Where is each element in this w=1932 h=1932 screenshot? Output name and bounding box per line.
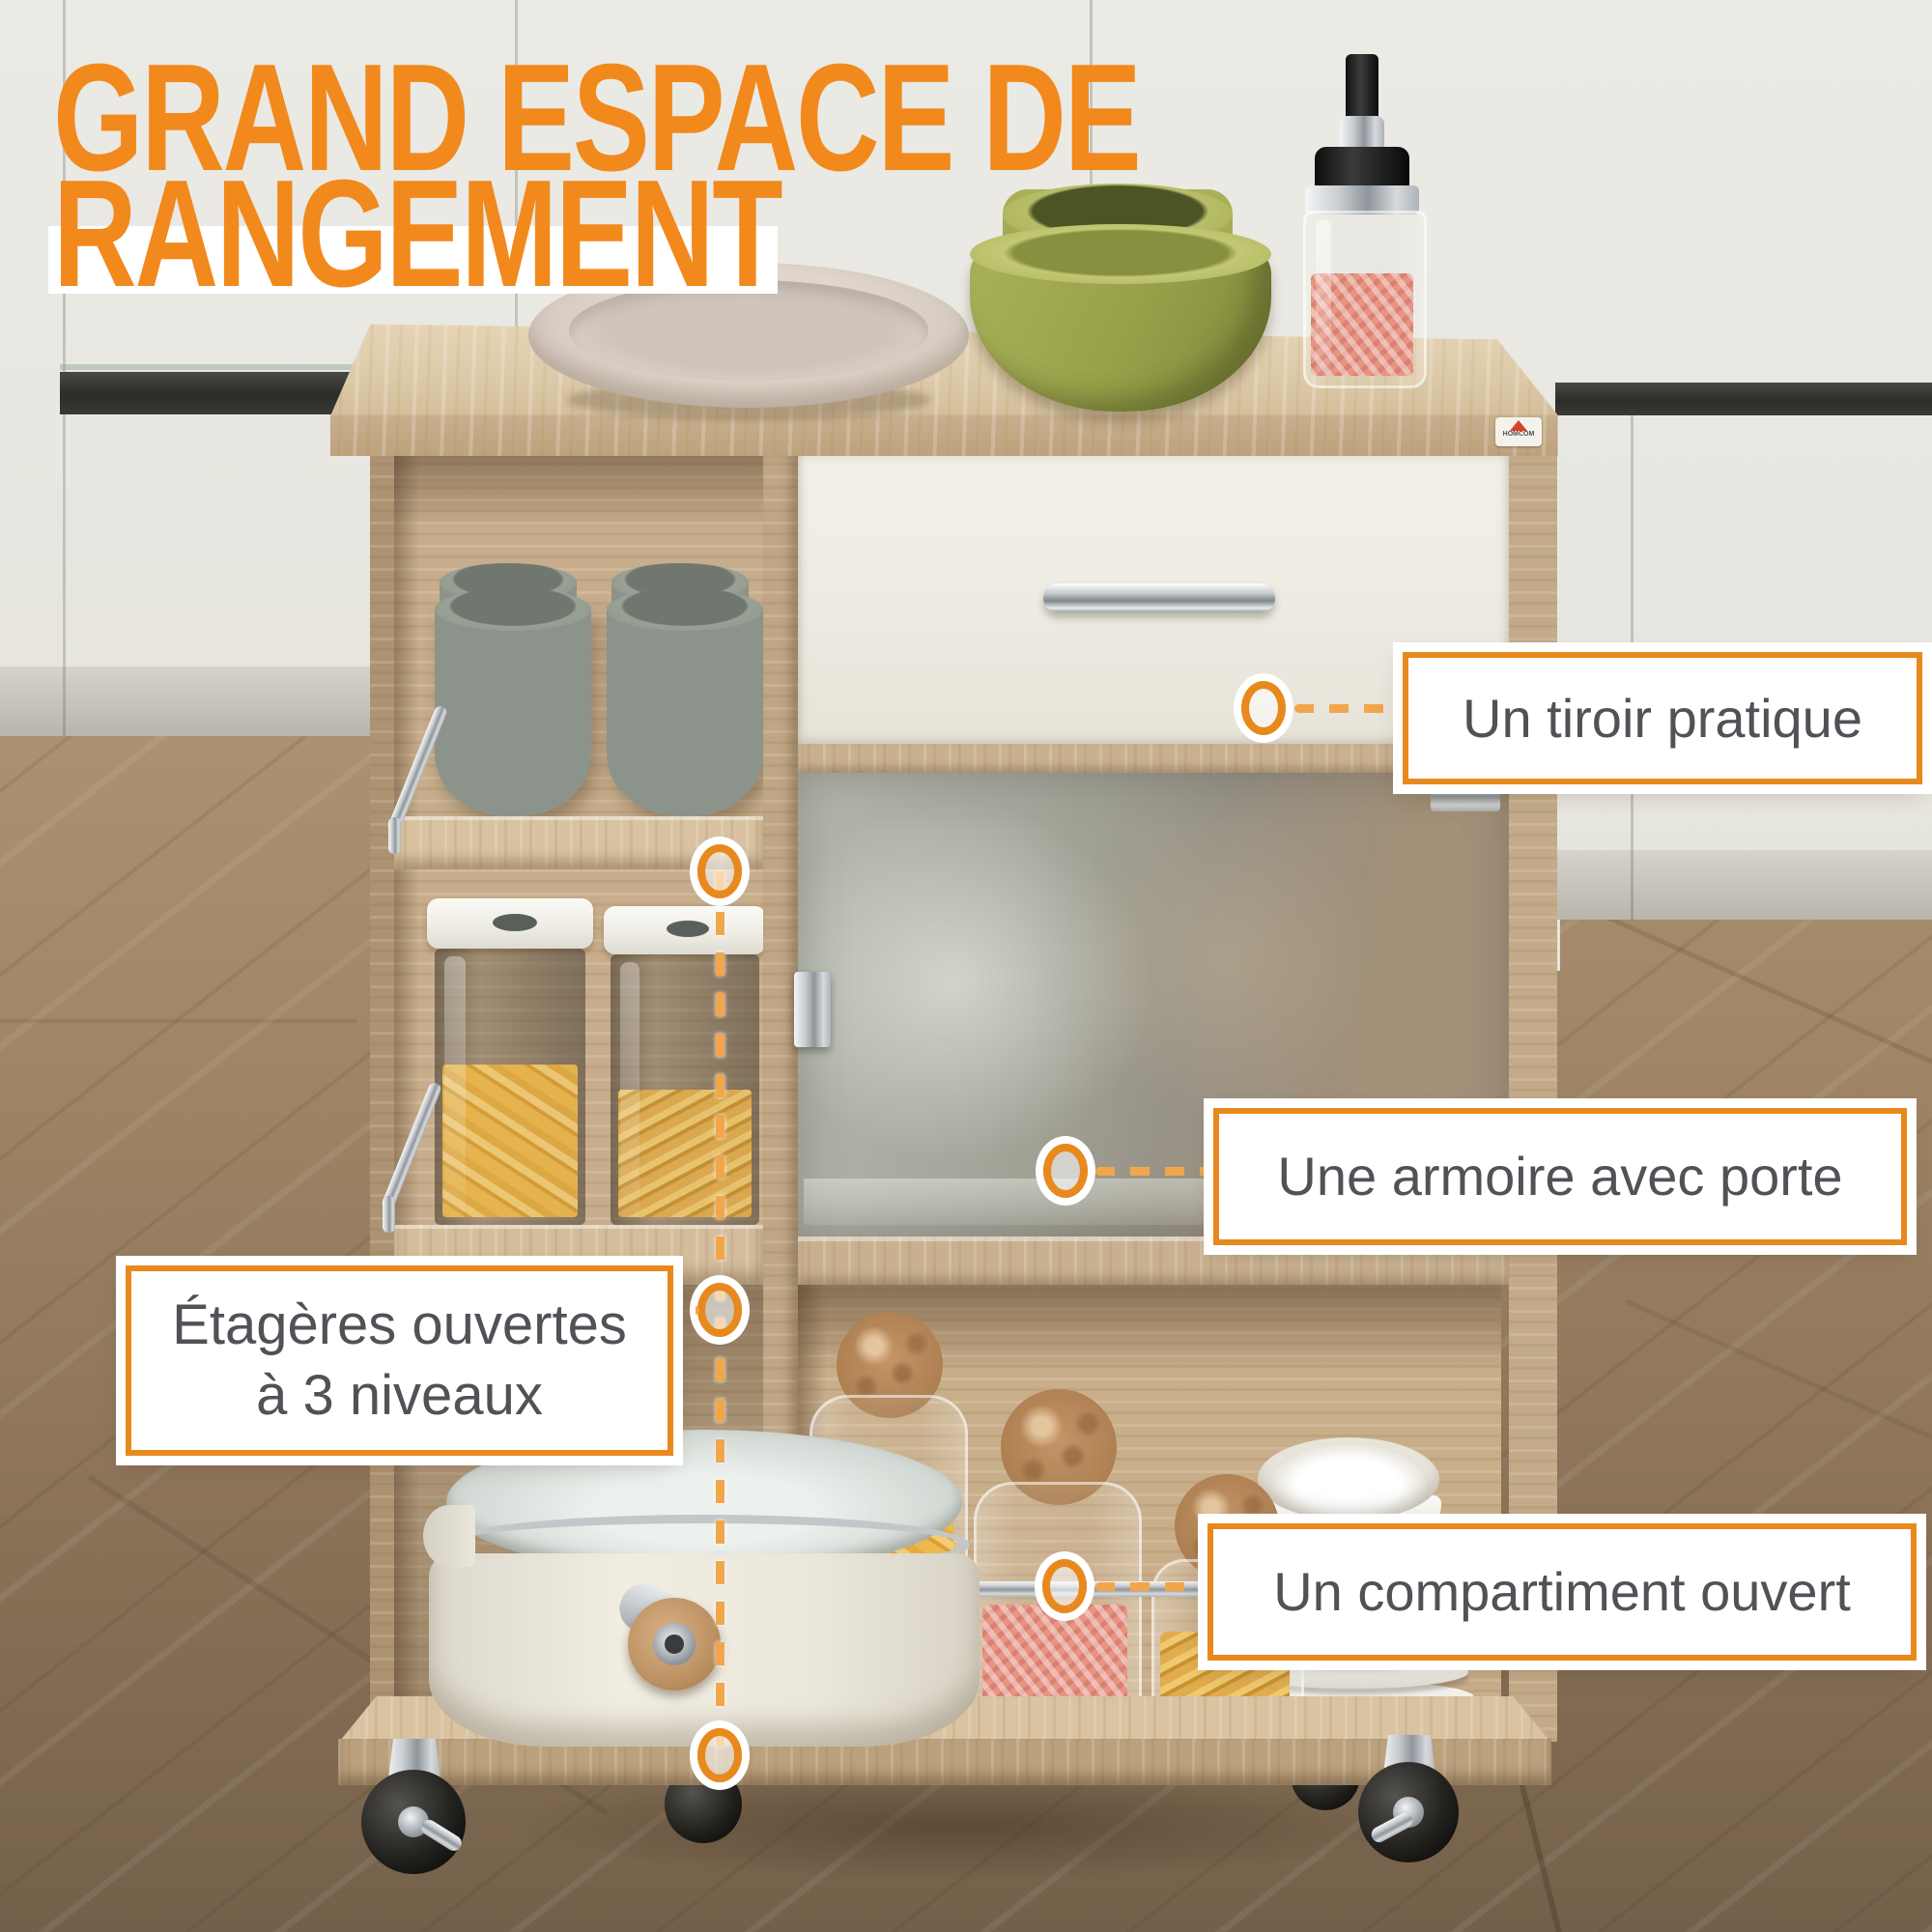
product-infographic: HOMCOM Un [0,0,1932,1932]
tiroir-callout: Un tiroir pratique [1403,652,1922,784]
compartiment-callout: Un compartiment ouvert [1207,1523,1917,1661]
grinder-glass [1303,211,1427,388]
glass-highlight [620,962,639,1217]
compartiment-dash [1095,1582,1206,1591]
pasta-container-right [609,906,761,1225]
level-marker-top [697,844,742,898]
armoire-callout: Une armoire avec porte [1213,1108,1907,1245]
level-marker-bottom [697,1728,742,1782]
gray-cups-group [425,575,773,826]
stock-pot [429,1430,980,1748]
knob-center [665,1634,684,1654]
ribbed-cup [435,607,591,816]
container-body [435,949,585,1225]
compartiment-marker [1042,1559,1087,1613]
etageres-label: Étagères ouvertes à 3 niveaux [172,1291,627,1431]
lid-button [667,921,709,937]
container-body [611,954,759,1225]
caster-front-left [359,1735,475,1880]
compartiment-label: Un compartiment ouvert [1273,1558,1851,1626]
armoire-marker [1043,1144,1088,1198]
cup-rim [435,588,591,631]
door-handle [794,972,831,1047]
glass-highlight [444,956,466,1217]
cup-rim [607,588,763,631]
ribbed-cup [607,607,763,816]
tiroir-dash [1294,704,1406,713]
page-title: GRAND ESPACE DE RANGEMENT [53,60,1140,292]
brand-label: HOMCOM [1495,417,1542,446]
lid-button [493,914,537,931]
etageres-line2: à 3 niveaux [172,1361,627,1432]
tiroir-label: Un tiroir pratique [1463,685,1862,753]
pot-spout [423,1505,475,1567]
glass-highlight [1316,219,1331,376]
pasta-container-left [433,898,587,1225]
cart-side-panel-left [370,452,394,1742]
shelf-top-shadow [394,452,763,529]
armoire-label: Une armoire avec porte [1277,1143,1842,1210]
etageres-callout: Étagères ouvertes à 3 niveaux [126,1265,673,1456]
brand-house-icon [1510,420,1527,431]
brand-name: HOMCOM [1495,431,1542,438]
caster-front-right [1352,1731,1468,1876]
tiroir-marker [1241,681,1286,735]
salt-grinder [1299,54,1425,383]
level-marker-middle [697,1283,742,1337]
drawer-handle [1043,583,1275,612]
armoire-dash [1095,1167,1211,1176]
side-rail-post [383,1196,395,1233]
etageres-line1: Étagères ouvertes [172,1291,627,1361]
side-rail-post [388,817,401,854]
pot-wood-knob [628,1598,721,1690]
